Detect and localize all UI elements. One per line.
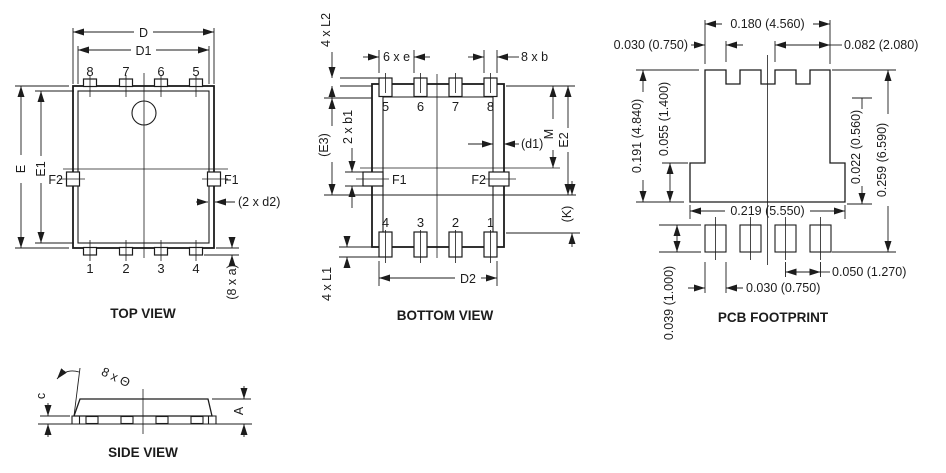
side-pins: [86, 417, 203, 424]
pin-number: 5: [192, 64, 199, 79]
dim-lowerwidth-label: 0.219 (5.550): [730, 204, 804, 218]
pin-number: 8: [487, 99, 494, 114]
pin-number: 7: [452, 99, 459, 114]
pin-number: 6: [157, 64, 164, 79]
dim-pitch-extensions: [786, 262, 821, 277]
dim-pinpadwidth-label: 0.030 (0.750): [746, 281, 820, 295]
pin-number: 6: [417, 99, 424, 114]
pin-number: 2: [122, 261, 129, 276]
dim-pitch-label: 0.050 (1.270): [832, 265, 906, 279]
dim-F1-label: F1: [224, 173, 239, 187]
dim-E3-label: (E3): [317, 133, 331, 157]
dim-pinpadwidth-extensions: [705, 262, 726, 293]
top-view-pins: [84, 75, 203, 261]
dim-lowerheight-label: 0.055 (1.400): [657, 82, 671, 156]
dim-b1-label: 2 x b1: [341, 110, 355, 144]
pin-number: 4: [192, 261, 199, 276]
pin-number: 4: [382, 215, 389, 230]
pin-number: 1: [487, 215, 494, 230]
dim-M-label: M: [542, 129, 556, 139]
dim-A-label: A: [232, 406, 246, 415]
dim-D1-label: D1: [136, 44, 152, 58]
pcb-pin-pads: [705, 217, 831, 260]
top-package-inner-outline: [78, 91, 209, 243]
side-view-title: SIDE VIEW: [108, 445, 178, 460]
dim-a-extensions: [204, 248, 239, 255]
drawing-canvas: 8 7 6 5 1 2 3 4 D D1 E E1 F2 F1 (2 x d2): [0, 0, 946, 473]
dim-tooth-label: 0.030 (0.750): [614, 38, 688, 52]
angle-arc: [57, 371, 79, 379]
dim-F2-label: F2: [48, 173, 63, 187]
dim-D-label: D: [139, 26, 148, 40]
dim-e-label: 6 x e: [383, 50, 410, 64]
dim-E2-label: E2: [557, 132, 571, 147]
bottom-view-title: BOTTOM VIEW: [397, 308, 494, 323]
pin-number: 8: [86, 64, 93, 79]
side-view: c A 8 x Θ SIDE VIEW: [34, 365, 252, 460]
pin-number: 2: [452, 215, 459, 230]
dim-b-extensions: [484, 50, 497, 73]
dim-L1-label: 4 x L1: [320, 267, 334, 301]
pin-number: 3: [417, 215, 424, 230]
pin-number: 7: [122, 64, 129, 79]
dim-d2-label: (2 x d2): [238, 195, 280, 209]
dim-pinpadheight-label: 0.039 (1.000): [662, 266, 676, 340]
dim-angle-label: 8 x Θ: [99, 365, 132, 390]
dim-D2-label: D2: [460, 272, 476, 286]
dim-topwidth-label: 0.180 (4.560): [730, 17, 804, 31]
pcb-footprint-view: 0.180 (4.560) 0.030 (0.750) 0.082 (2.080…: [614, 17, 919, 340]
side-lead-plate: [72, 416, 216, 424]
dim-E-label: E: [14, 165, 28, 173]
dim-L1-extensions: [339, 247, 379, 257]
pin-number: 1: [86, 261, 93, 276]
dim-F2-label: F2: [471, 173, 486, 187]
dim-pinpadheight-extensions: [659, 225, 701, 252]
dim-padheight-label: 0.191 (4.840): [630, 99, 644, 173]
dim-b-label: 8 x b: [521, 50, 548, 64]
dim-E1-label: E1: [34, 161, 48, 176]
bottom-package-outline: [372, 84, 504, 247]
pin-number: 5: [382, 99, 389, 114]
bottom-package-rails: [383, 86, 493, 245]
dim-F1-label: F1: [392, 173, 407, 187]
dim-step-label: 0.022 (0.560): [849, 110, 863, 184]
top-view: 8 7 6 5 1 2 3 4 D D1 E E1 F2 F1 (2 x d2): [14, 26, 280, 321]
dim-K-label: (K): [560, 206, 574, 223]
dim-d1-label: (d1): [521, 137, 543, 151]
dim-c-label: c: [34, 393, 48, 399]
top-view-title: TOP VIEW: [110, 306, 176, 321]
dim-D2-extensions: [379, 261, 497, 286]
bottom-view: F1 F2 5 6 7 8 4 3 2 1 4 x L2 6 x e 8 x b…: [317, 13, 580, 323]
top-package-outline: [73, 86, 214, 248]
dim-a-label: (8 x a): [225, 264, 239, 299]
dim-L2-label: 4 x L2: [319, 13, 333, 47]
dim-totalheight-label: 0.259 (6.590): [875, 123, 889, 197]
dim-topright-label: 0.082 (2.080): [844, 38, 918, 52]
package-outline-drawing: 8 7 6 5 1 2 3 4 D D1 E E1 F2 F1 (2 x d2): [0, 0, 946, 473]
pcb-footprint-title: PCB FOOTPRINT: [718, 310, 829, 325]
pin-number: 3: [157, 261, 164, 276]
bottom-view-centerlines: [360, 74, 560, 258]
